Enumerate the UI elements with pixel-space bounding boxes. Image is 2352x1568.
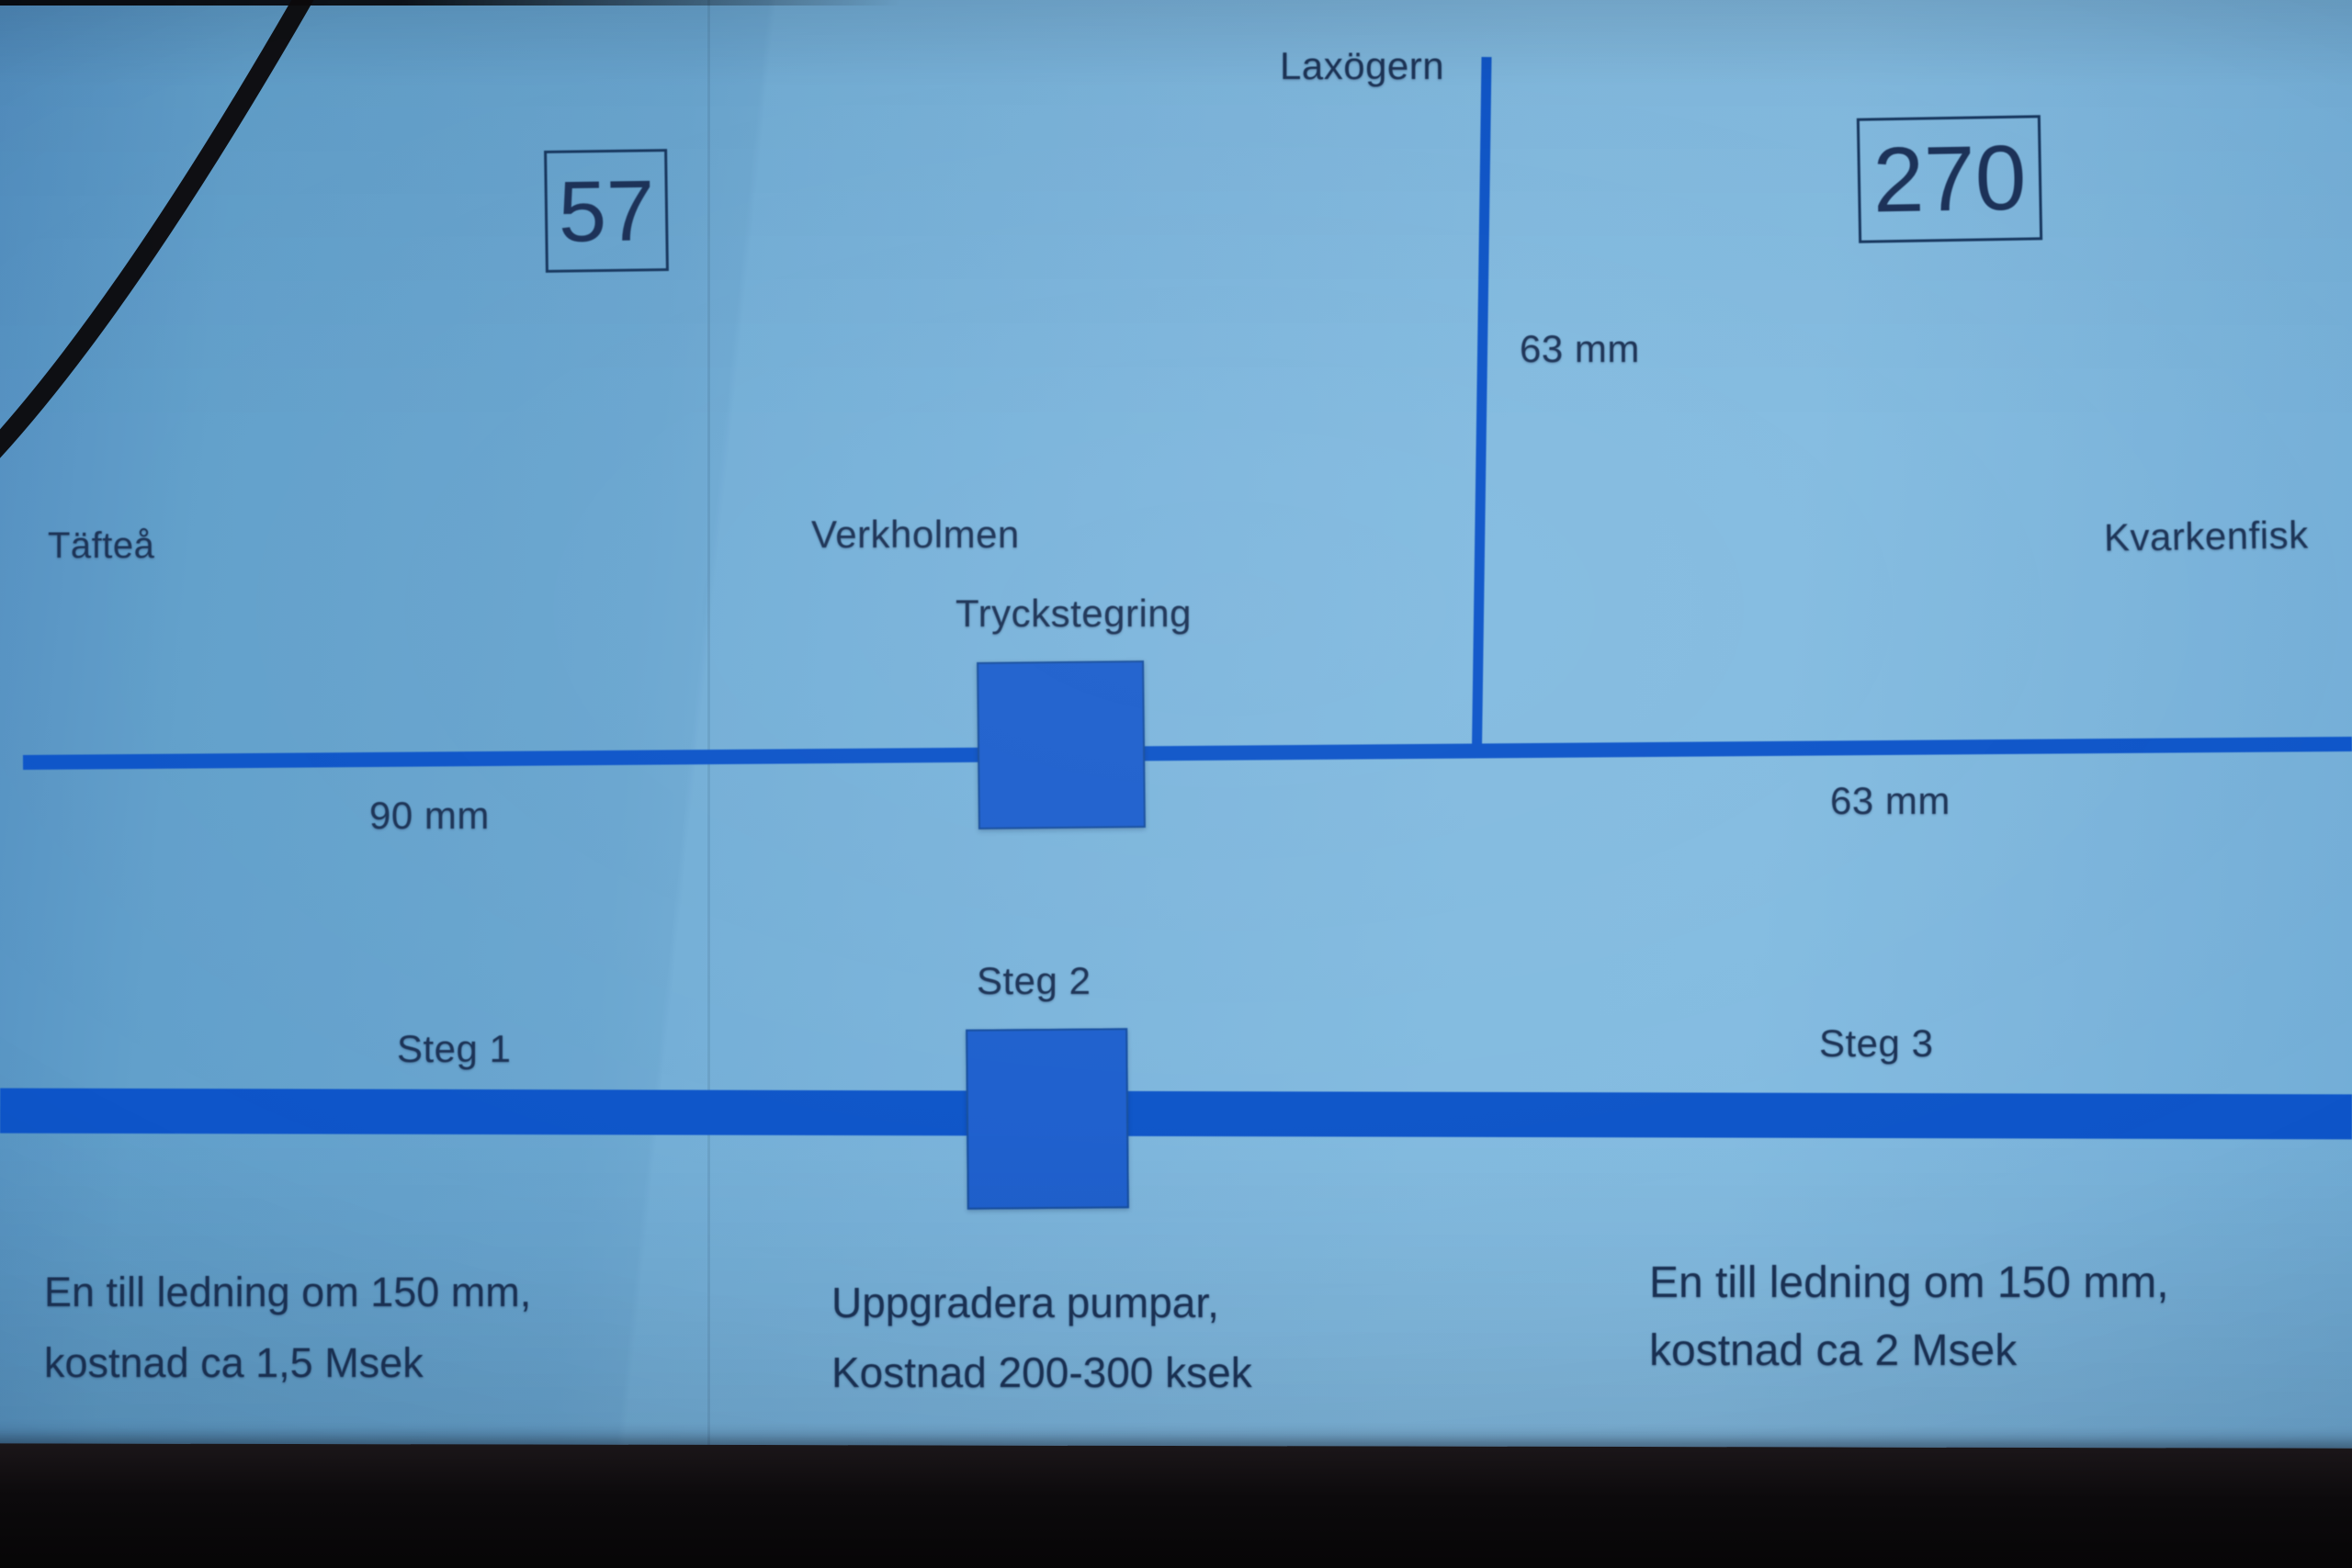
note-steg1-line2: kostnad ca 1,5 Msek (44, 1327, 531, 1398)
slide-background: 57 270 Laxögern Täfteå Verkholmen Trycks… (0, 0, 2352, 1449)
note-steg2-line2: Kostnad 200-300 ksek (831, 1337, 1252, 1407)
pump-square-tryckstegring (977, 660, 1146, 829)
pipe-left-dimension-label: 90 mm (369, 794, 490, 838)
pipe-main-lower (0, 1089, 2352, 1140)
value-box-left-number: 57 (558, 161, 655, 261)
projector-screen-seam (707, 0, 710, 1449)
note-steg3-line2: kostnad ca 2 Msek (1649, 1317, 2169, 1385)
value-box-right: 270 (1857, 115, 2042, 243)
photographed-slide-screenshot: 57 270 Laxögern Täfteå Verkholmen Trycks… (0, 0, 2352, 1568)
step-label-steg3: Steg 3 (1819, 1021, 1933, 1066)
note-steg1-line1: En till ledning om 150 mm, (44, 1257, 531, 1327)
step-label-steg2: Steg 2 (977, 959, 1091, 1003)
pipe-right-dimension-label: 63 mm (1830, 779, 1951, 823)
note-steg3: En till ledning om 150 mm, kostnad ca 2 … (1649, 1249, 2169, 1385)
pipe-main-upper (23, 737, 2352, 770)
note-steg2-line1: Uppgradera pumpar, (831, 1268, 1252, 1337)
note-steg1: En till ledning om 150 mm, kostnad ca 1,… (44, 1257, 531, 1398)
step-label-steg1: Steg 1 (397, 1027, 511, 1071)
riser-dimension-label: 63 mm (1520, 327, 1640, 371)
pump-square-steg2 (966, 1028, 1129, 1210)
value-box-left: 57 (544, 149, 669, 273)
pipe-riser-laxogern (1472, 57, 1492, 749)
place-label-laxogern: Laxögern (1280, 44, 1444, 88)
top-bezel-edge (0, 0, 900, 6)
bottom-bezel-bar (0, 1443, 2352, 1568)
value-box-right-number: 270 (1872, 125, 2028, 233)
place-label-kvarkenfisk: Kvarkenfisk (2104, 513, 2309, 559)
place-label-tafteo: Täfteå (48, 525, 154, 567)
place-label-verkholmen: Verkholmen (811, 513, 1020, 557)
note-steg2: Uppgradera pumpar, Kostnad 200-300 ksek (831, 1268, 1252, 1407)
note-steg3-line1: En till ledning om 150 mm, (1649, 1249, 2169, 1317)
pump-label-tryckstegring: Tryckstegring (955, 592, 1192, 636)
